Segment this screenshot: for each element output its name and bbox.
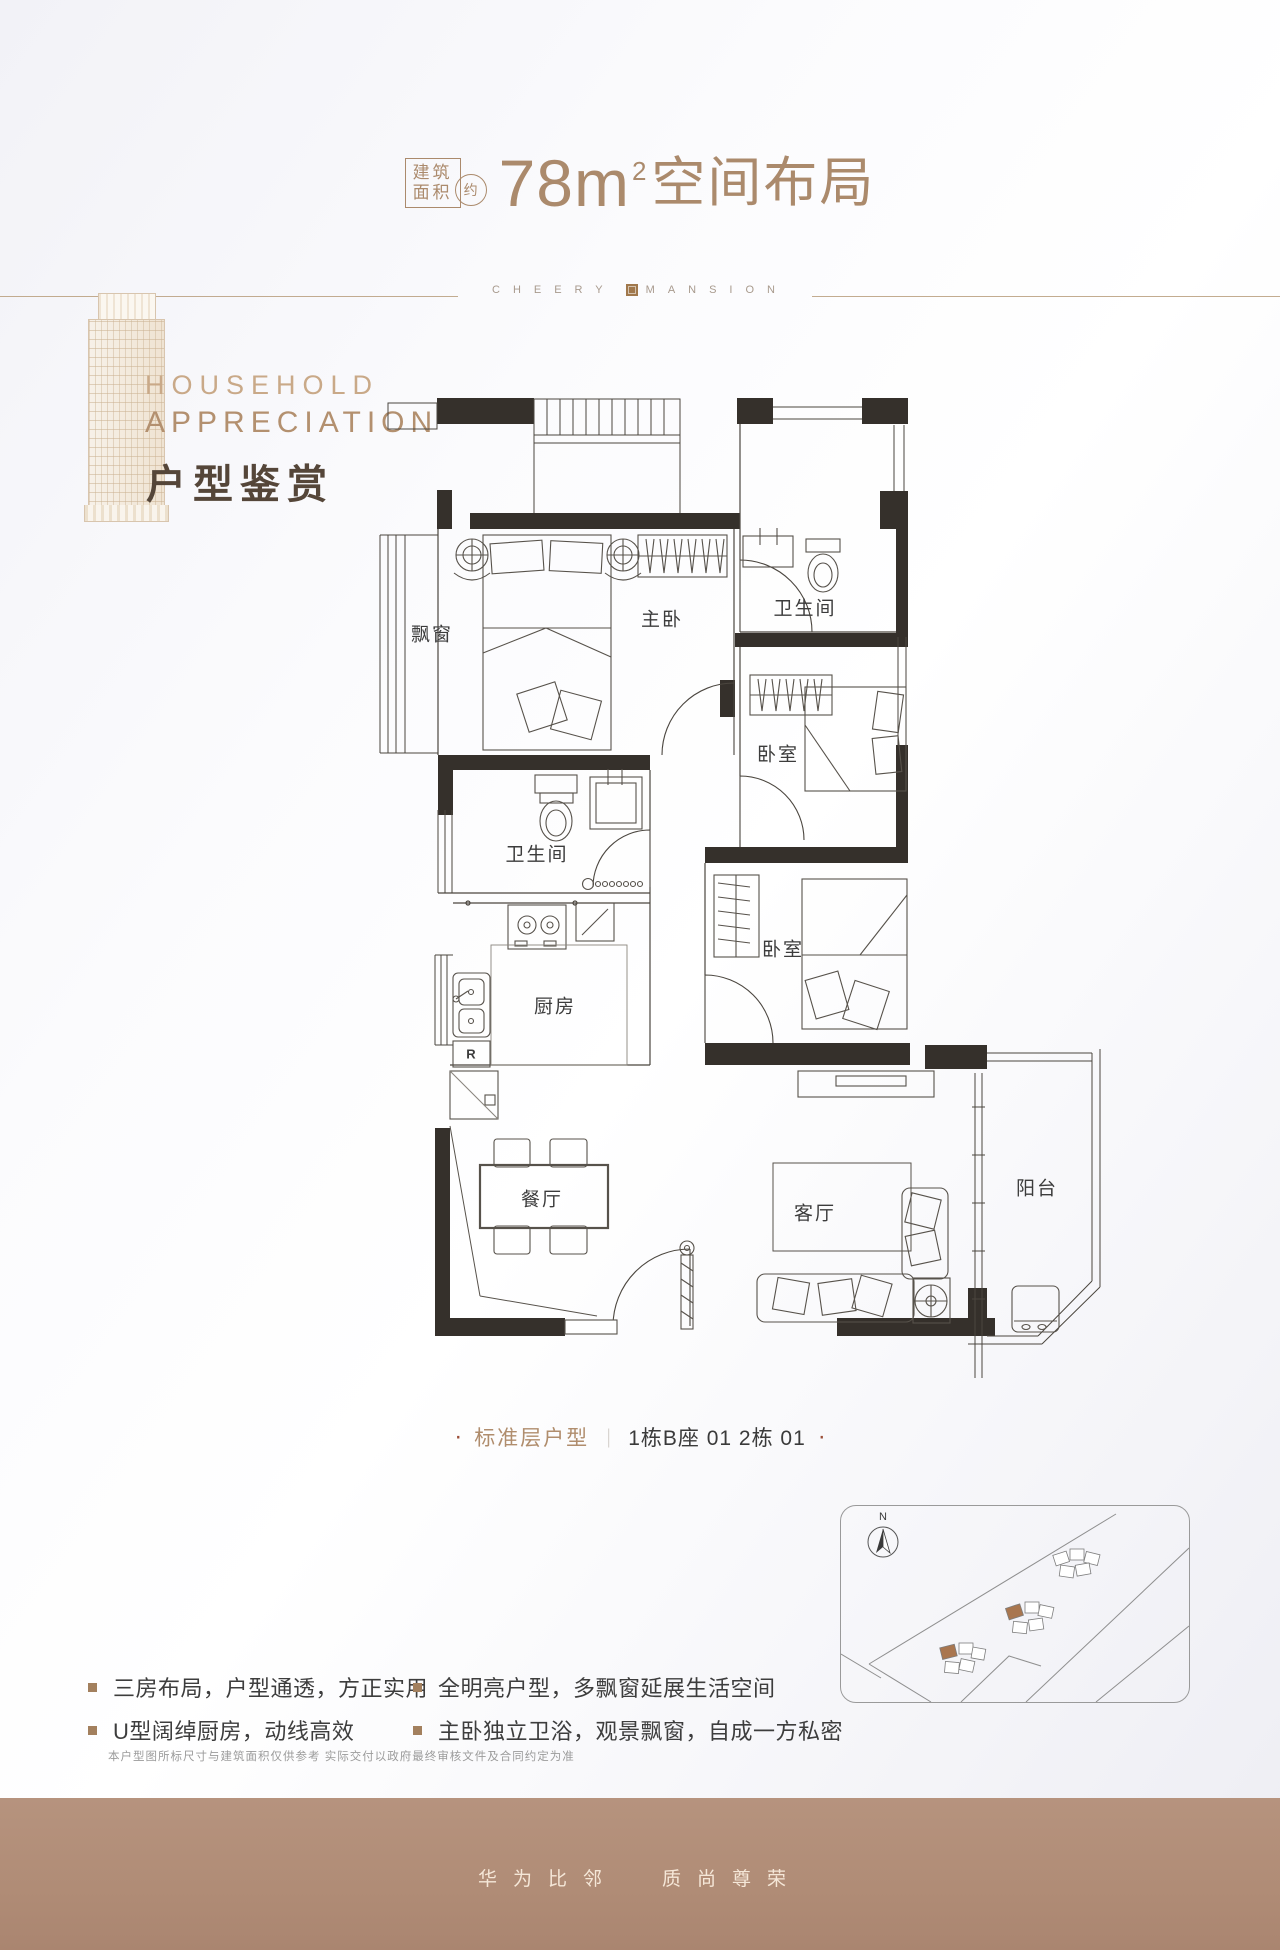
approx-circle: 约 bbox=[455, 174, 487, 206]
label-bathroom-2: 卫生间 bbox=[505, 840, 568, 867]
divider-line-left bbox=[0, 296, 458, 297]
feature-text-1: 三房布局，户型通透，方正实用 bbox=[113, 1671, 428, 1703]
label-kitchen: 厨房 bbox=[534, 992, 576, 1019]
caption-dot-right: · bbox=[818, 1423, 826, 1451]
feature-text-2: U型阔绰厨房，动线高效 bbox=[113, 1714, 354, 1746]
disclaimer-text: 本户型图所标尺寸与建筑面积仅供参考 实际交付以政府最终审核文件及合同约定为准 bbox=[108, 1748, 575, 1764]
label-dining-room: 餐厅 bbox=[521, 1185, 563, 1212]
divider-line-right bbox=[812, 296, 1280, 297]
footer-slogan-left: 华为比邻 bbox=[478, 1864, 618, 1891]
footer-slogan: 华为比邻 质尚尊荣 bbox=[0, 1864, 1280, 1891]
bullet-square-icon bbox=[88, 1683, 97, 1692]
feature-text-4: 主卧独立卫浴，观景飘窗，自成一方私密 bbox=[438, 1714, 843, 1746]
area-box: 建筑 面积 bbox=[405, 158, 461, 209]
floor-plan-drawing bbox=[350, 395, 1110, 1405]
floor-plan: 飘窗 主卧 卫生间 卧室 卫生间 厨房 卧室 餐厅 客厅 阳台 R bbox=[350, 395, 1110, 1405]
feature-item-1: 三房布局，户型通透，方正实用 bbox=[88, 1671, 428, 1703]
caption-units: 1栋B座 01 2栋 01 bbox=[628, 1422, 806, 1452]
caption-dot-left: · bbox=[454, 1423, 462, 1451]
feature-item-2: U型阔绰厨房，动线高效 bbox=[88, 1714, 354, 1746]
label-bathroom-1: 卫生间 bbox=[773, 594, 836, 621]
bullet-square-icon bbox=[413, 1726, 422, 1735]
brand-right: MANSION bbox=[646, 284, 788, 296]
area-box-line1: 建筑 bbox=[413, 163, 453, 183]
feature-item-4: 主卧独立卫浴，观景飘窗，自成一方私密 bbox=[413, 1714, 843, 1746]
tower-illustration-top bbox=[98, 293, 156, 321]
area-superscript: 2 bbox=[632, 156, 647, 186]
area-box-line2: 面积 bbox=[413, 183, 453, 203]
label-balcony: 阳台 bbox=[1016, 1174, 1058, 1201]
brand-square-icon bbox=[626, 284, 638, 296]
poster-page: { "header": { "area_box_line1": "建筑", "a… bbox=[0, 0, 1280, 1950]
feature-text-3: 全明亮户型，多飘窗延展生活空间 bbox=[438, 1671, 776, 1703]
plan-caption: · 标准层户型 ｜ 1栋B座 01 2栋 01 · bbox=[0, 1422, 1280, 1452]
footer-band: 华为比邻 质尚尊荣 bbox=[0, 1798, 1280, 1950]
intro-english-line1: HOUSEHOLD bbox=[145, 370, 379, 401]
north-compass-icon bbox=[868, 1527, 898, 1557]
title-rest: 空间布局 bbox=[651, 156, 875, 210]
caption-category: 标准层户型 bbox=[474, 1422, 589, 1452]
area-number: 78m2 bbox=[499, 150, 648, 216]
label-living-room: 客厅 bbox=[794, 1199, 836, 1226]
brand-line: CHEERY MANSION bbox=[470, 284, 810, 296]
brand-left: CHEERY bbox=[492, 284, 616, 296]
intro-chinese-title: 户型鉴赏 bbox=[146, 452, 334, 510]
bullet-square-icon bbox=[413, 1683, 422, 1692]
site-plan: N bbox=[840, 1505, 1190, 1703]
page-title: 建筑 面积 约 78m2 空间布局 bbox=[0, 150, 1280, 216]
label-bedroom-1: 卧室 bbox=[757, 740, 799, 767]
label-master-bedroom: 主卧 bbox=[641, 605, 683, 632]
footer-slogan-right: 质尚尊荣 bbox=[662, 1864, 802, 1891]
north-label: N bbox=[879, 1511, 887, 1523]
label-fridge: R bbox=[466, 1047, 475, 1062]
plan-furniture bbox=[450, 528, 1059, 1334]
caption-separator: ｜ bbox=[599, 1424, 618, 1451]
label-bedroom-2: 卧室 bbox=[762, 935, 804, 962]
bullet-square-icon bbox=[88, 1726, 97, 1735]
site-plan-drawing: N bbox=[841, 1506, 1189, 1702]
label-bay-window: 飘窗 bbox=[411, 620, 453, 647]
feature-item-3: 全明亮户型，多飘窗延展生活空间 bbox=[413, 1671, 776, 1703]
